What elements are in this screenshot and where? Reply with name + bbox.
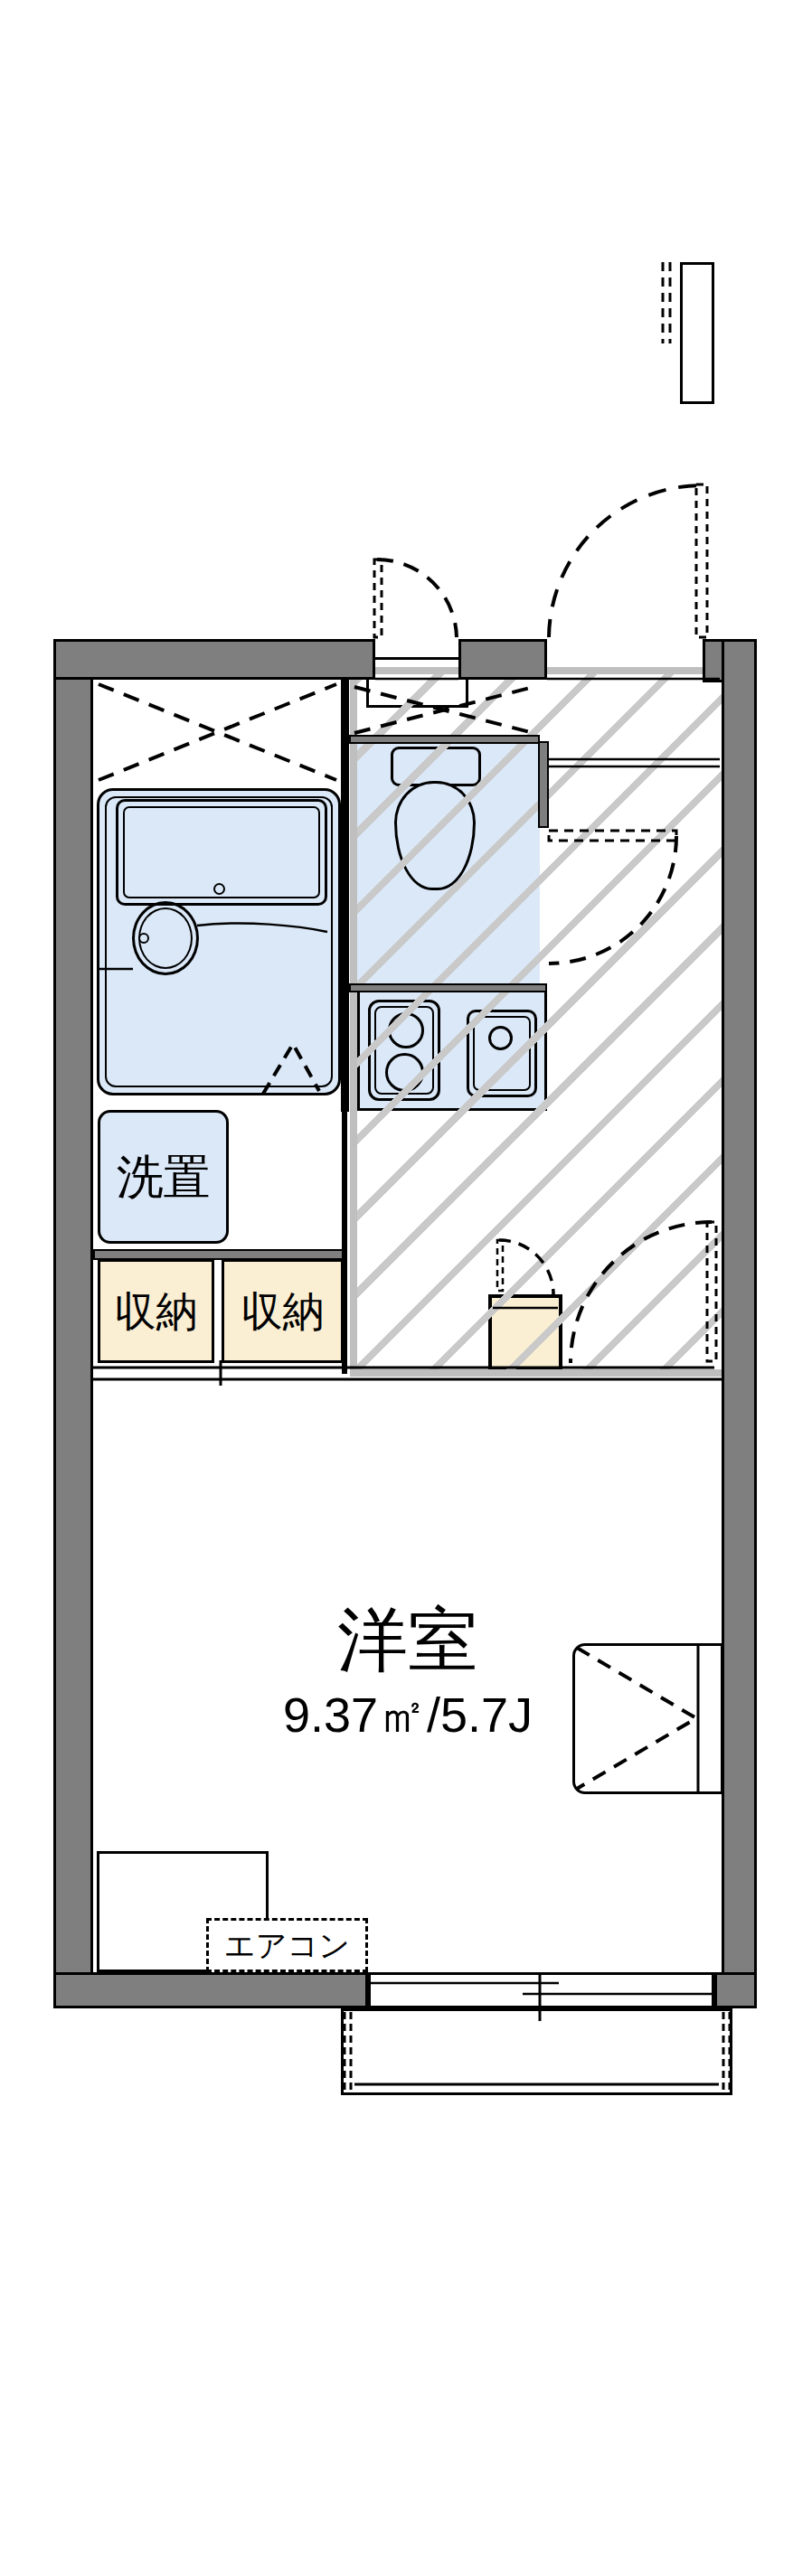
bath-x-mark [99, 684, 336, 780]
washbasin-faucet [138, 933, 149, 944]
wall-bottom-right-corner [714, 1972, 757, 2008]
room-area-label: 9.37㎡/5.7J [283, 1690, 533, 1739]
washer-label: 洗置 [117, 1153, 211, 1200]
corridor-left-wall-line [342, 1112, 347, 1374]
wall-bottom-left [53, 1972, 368, 2008]
entry-door-panel [680, 262, 714, 404]
storage-box-left: 収納 [98, 1259, 214, 1363]
balcony [341, 2008, 732, 2095]
storage-right-label: 収納 [241, 1291, 325, 1332]
toilet-bottom-wall [349, 983, 547, 992]
storage-left-label: 収納 [115, 1291, 198, 1332]
aircon-box: エアコン [206, 1918, 368, 1972]
washer-box: 洗置 [98, 1110, 229, 1244]
room-name: 洋室 [272, 1602, 543, 1678]
toilet-right-wall [538, 741, 549, 828]
wall-top-mid-segment [458, 639, 547, 680]
wall-top-left-segment [53, 639, 375, 680]
aircon-label: エアコン [224, 1930, 350, 1960]
toilet-top-wall [349, 735, 540, 744]
sliding-window [368, 1972, 714, 2008]
room-area: 9.37㎡/5.7J [209, 1687, 607, 1743]
floorplan-canvas: 洗置 収納 収納 洋室 9.37㎡/5.7J エアコン [0, 0, 812, 2576]
closet-window-box [572, 1643, 723, 1794]
storage-box-right: 収納 [222, 1259, 344, 1363]
washer-area-top-wall [93, 1249, 344, 1260]
wall-left [53, 639, 93, 2008]
bathroom-divider-wall [341, 680, 349, 1112]
entrance-hatch-area [350, 667, 722, 1377]
bathtub-drain [213, 883, 225, 895]
room-name-label: 洋室 [337, 1604, 478, 1675]
toilet-window-door-swing [374, 559, 457, 637]
wall-right [722, 639, 757, 2008]
